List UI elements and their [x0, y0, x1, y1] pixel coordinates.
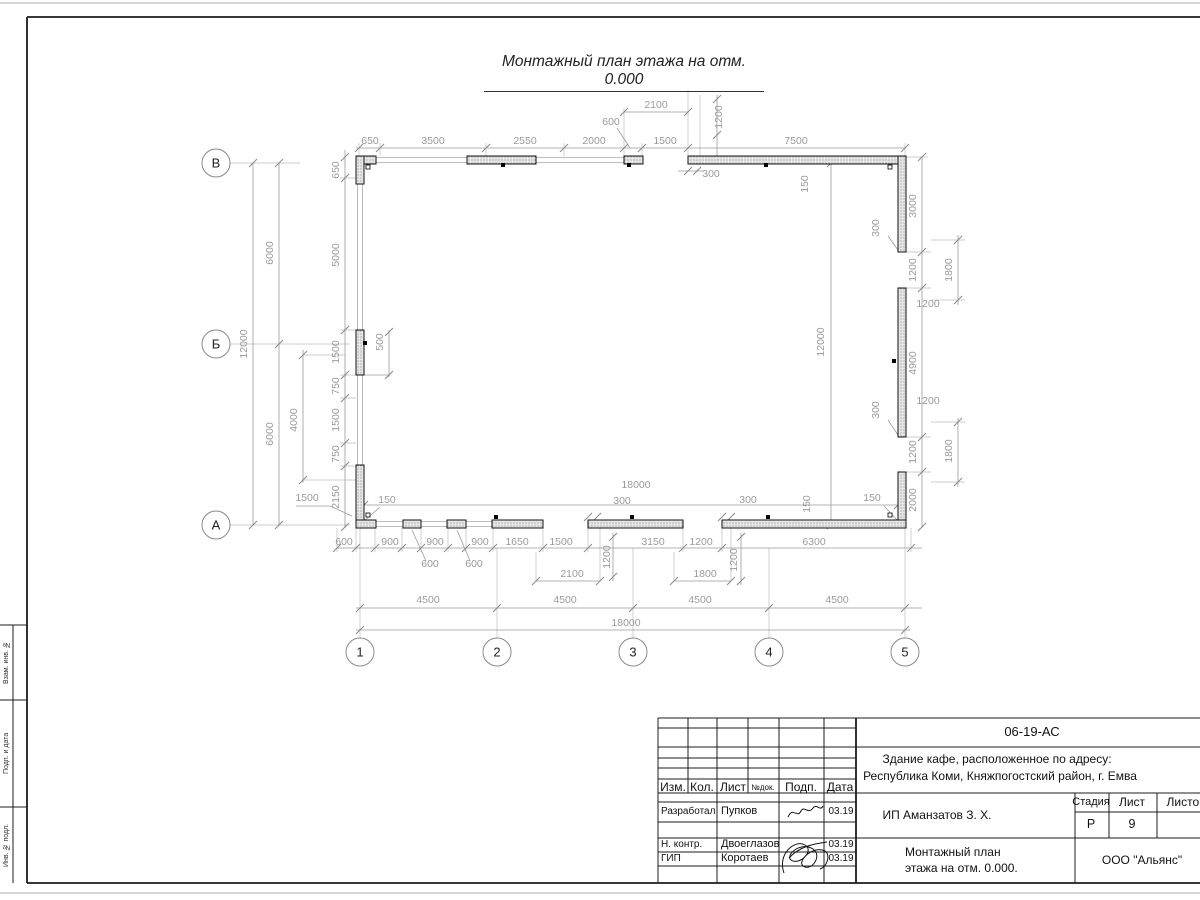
dim-label: 1650 [505, 536, 529, 548]
svg-text:4: 4 [765, 645, 772, 660]
col-ndok: №док. [751, 783, 774, 792]
dim-label: 12000 [238, 329, 250, 358]
dim-label: 1200 [907, 258, 919, 282]
sheet-label: Лист [1119, 795, 1145, 809]
row-date: 03.19 [828, 839, 853, 850]
dim-label: 6300 [802, 536, 826, 548]
dim-label: 12000 [815, 327, 827, 356]
dim-label: 2100 [560, 568, 584, 580]
axis-bubble: 5 [891, 638, 919, 666]
sheet-value: 9 [1129, 817, 1136, 831]
dim-label: 650 [361, 135, 379, 147]
dim-label: 300 [870, 219, 882, 237]
dim-label: 750 [330, 377, 342, 395]
dim-label: 1500 [549, 536, 573, 548]
dim-label: 1500 [330, 340, 342, 364]
dim-label: 600 [465, 558, 483, 570]
dim-label: 4500 [688, 594, 712, 606]
dim-label: 750 [330, 445, 342, 463]
dim-label: 6000 [264, 241, 276, 265]
dim-label: 18000 [611, 617, 640, 629]
dim-label: 3150 [641, 536, 665, 548]
dim-label: 150 [799, 175, 811, 193]
svg-text:Б: Б [212, 337, 221, 352]
axis-bubble: Б [202, 330, 230, 358]
axis-bubbles: ВБА12345 [202, 149, 919, 666]
dim-label: 4900 [907, 351, 919, 375]
row-name: Двоеглазов [721, 838, 779, 850]
dim-label: 900 [426, 536, 444, 548]
col-kol: Кол. [690, 780, 714, 794]
dim-label: 2000 [907, 488, 919, 512]
row-role: Н. контр. [661, 839, 702, 850]
dim-label: 600 [421, 558, 439, 570]
window-lines [358, 158, 625, 527]
dim-label: 1800 [943, 439, 955, 463]
dim-label: 1200 [916, 298, 940, 310]
dim-label: 150 [378, 494, 396, 506]
col-podp: Подп. [785, 780, 817, 794]
dim-label: 1800 [693, 568, 717, 580]
corner-hooks [366, 165, 892, 517]
axis-bubble: А [202, 511, 230, 539]
svg-text:В: В [212, 156, 221, 171]
dim-label: 6000 [264, 422, 276, 446]
dim-label: 1200 [916, 395, 940, 407]
stage-value: Р [1087, 817, 1095, 831]
dim-label: 7500 [784, 135, 808, 147]
row-role: ГИП [661, 853, 681, 864]
svg-text:5: 5 [901, 645, 908, 660]
dimension-labels: 6503500255020001500750021006001200300150… [238, 99, 955, 629]
signatures [782, 806, 828, 873]
dim-label: 900 [471, 536, 489, 548]
dim-label: 18000 [621, 479, 650, 491]
sheets-label: Листов [1167, 795, 1200, 809]
axis-bubble: 2 [483, 638, 511, 666]
col-izm: Изм. [660, 780, 686, 794]
axis-bubble: 3 [619, 638, 647, 666]
svg-text:1: 1 [356, 645, 363, 660]
stage-label: Стадия [1072, 796, 1110, 808]
row-date: 03.19 [828, 853, 853, 864]
svg-text:3: 3 [629, 645, 636, 660]
dim-label: 1200 [713, 105, 725, 129]
dim-label: 300 [870, 401, 882, 419]
dim-label: 2550 [513, 135, 537, 147]
dim-label: 500 [374, 333, 386, 351]
dim-label: 600 [335, 536, 353, 548]
margin-label-middle: Подп. и дата [0, 700, 13, 807]
dim-label: 1200 [907, 440, 919, 464]
doc-title-line2: этажа на отм. 0.000. [905, 861, 1018, 875]
dim-label: 1200 [601, 545, 613, 569]
col-data: Дата [827, 780, 854, 794]
dim-label: 2100 [644, 99, 668, 111]
address-line2: Республика Коми, Княжпогостский район, г… [863, 769, 1137, 783]
doc-title-line1: Монтажный план [905, 845, 1001, 859]
dim-label: 5000 [330, 243, 342, 267]
dim-label: 1200 [689, 536, 713, 548]
axis-bubble: В [202, 149, 230, 177]
dim-label: 600 [602, 116, 620, 128]
dim-label: 2150 [330, 485, 342, 509]
dim-label: 4500 [553, 594, 577, 606]
svg-text:А: А [212, 518, 221, 533]
margin-label-top: Взам. инв. № [0, 625, 13, 700]
dim-label: 1500 [295, 492, 319, 504]
dim-label: 300 [613, 495, 631, 507]
dim-label: 3000 [907, 194, 919, 218]
dim-label: 1500 [330, 408, 342, 432]
dim-label: 650 [330, 161, 342, 179]
axis-bubble: 4 [755, 638, 783, 666]
dim-label: 4500 [825, 594, 849, 606]
row-name: Коротаев [721, 852, 769, 864]
row-role: Разработал [661, 806, 715, 817]
row-date: 03.19 [828, 806, 853, 817]
dim-label: 4500 [416, 594, 440, 606]
row-name: Пупков [721, 805, 757, 817]
dim-label: 1200 [728, 548, 740, 572]
dim-label: 2000 [582, 135, 606, 147]
doc-code: 06-19-АС [1004, 724, 1059, 739]
svg-text:2: 2 [493, 645, 500, 660]
client-name: ИП Аманзатов З. Х. [882, 808, 991, 822]
dim-label: 150 [863, 492, 881, 504]
dim-label: 300 [739, 494, 757, 506]
address-line1: Здание кафе, расположенное по адресу: [882, 752, 1111, 766]
dim-label: 1800 [943, 258, 955, 282]
col-list: Лист [720, 780, 746, 794]
dim-label: 300 [702, 168, 720, 180]
axis-bubble: 1 [346, 638, 374, 666]
dim-label: 150 [801, 495, 813, 513]
dim-label: 3500 [421, 135, 445, 147]
organization: ООО "Альянс" [1102, 853, 1182, 867]
margin-label-bottom: Инв. № подл. [0, 807, 13, 883]
page-title: Монтажный план этажа на отм. 0.000 [484, 53, 764, 92]
drawing-sheet: 6503500255020001500750021006001200300150… [0, 0, 1200, 900]
dim-label: 1500 [653, 135, 677, 147]
dim-label: 900 [381, 536, 399, 548]
dim-label: 4000 [288, 408, 300, 432]
